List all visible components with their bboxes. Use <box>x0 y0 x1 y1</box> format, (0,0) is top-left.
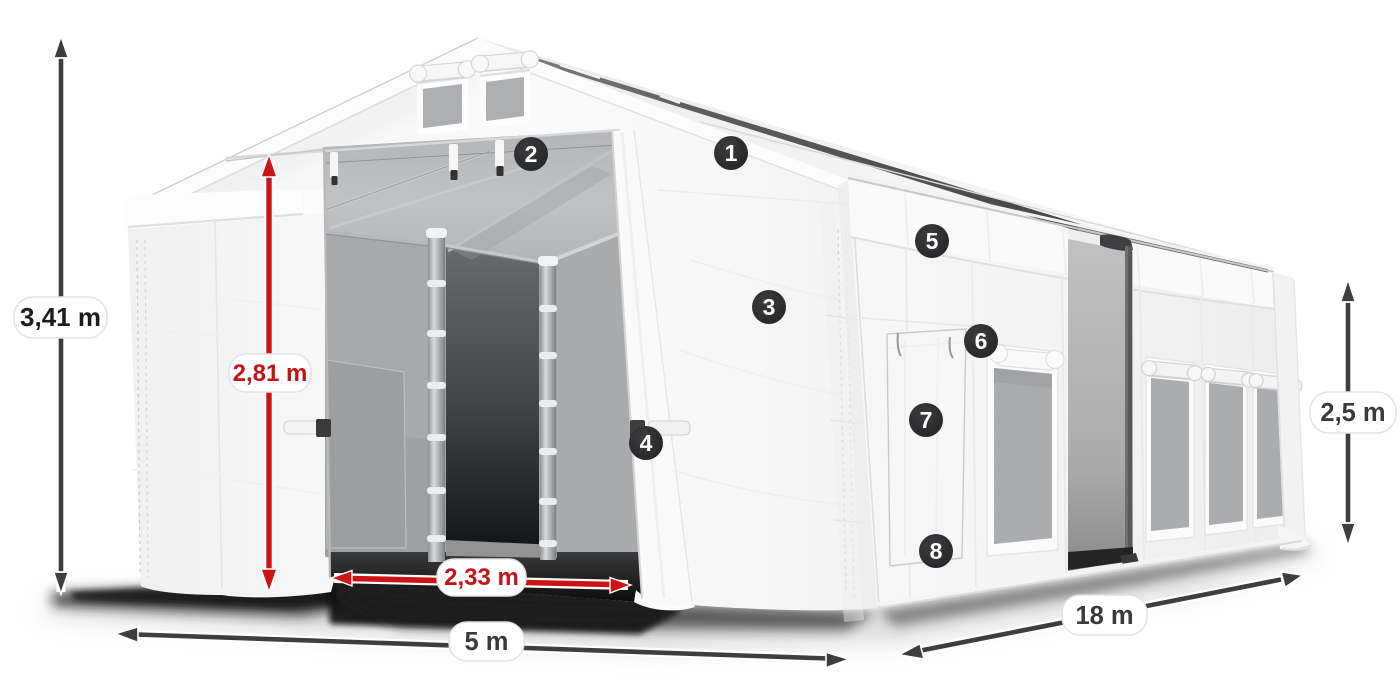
svg-text:3: 3 <box>763 294 776 320</box>
svg-text:5 m: 5 m <box>465 628 509 656</box>
svg-text:18 m: 18 m <box>1075 602 1133 630</box>
svg-text:3,41 m: 3,41 m <box>20 302 101 332</box>
svg-text:7: 7 <box>920 407 933 433</box>
svg-text:5: 5 <box>926 228 939 254</box>
svg-text:2,5 m: 2,5 m <box>1320 399 1385 427</box>
svg-text:6: 6 <box>975 328 988 354</box>
svg-text:1: 1 <box>725 140 738 166</box>
svg-text:2: 2 <box>525 141 538 167</box>
svg-text:8: 8 <box>930 538 943 564</box>
svg-text:4: 4 <box>640 430 653 456</box>
svg-text:2,81 m: 2,81 m <box>233 360 308 387</box>
svg-text:2,33 m: 2,33 m <box>444 564 519 591</box>
